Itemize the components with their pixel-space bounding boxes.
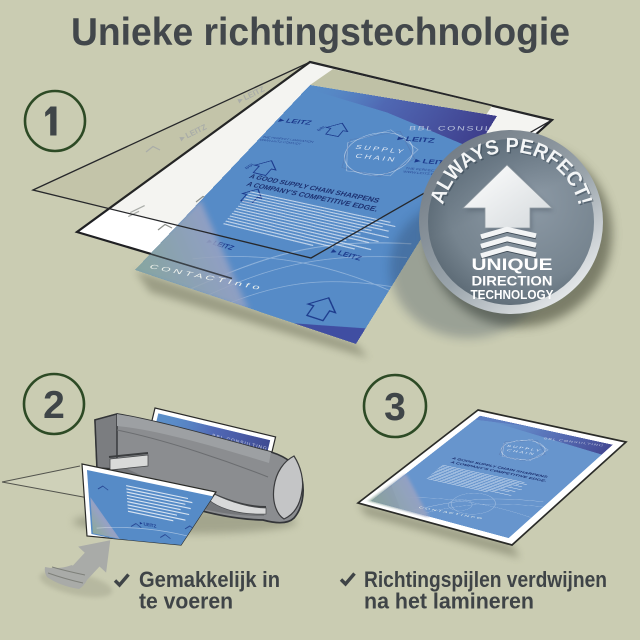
svg-text:UNIQUE: UNIQUE [472, 256, 553, 274]
svg-text:DIRECTION: DIRECTION [472, 273, 553, 289]
svg-text:TECHNOLOGY: TECHNOLOGY [471, 288, 555, 302]
